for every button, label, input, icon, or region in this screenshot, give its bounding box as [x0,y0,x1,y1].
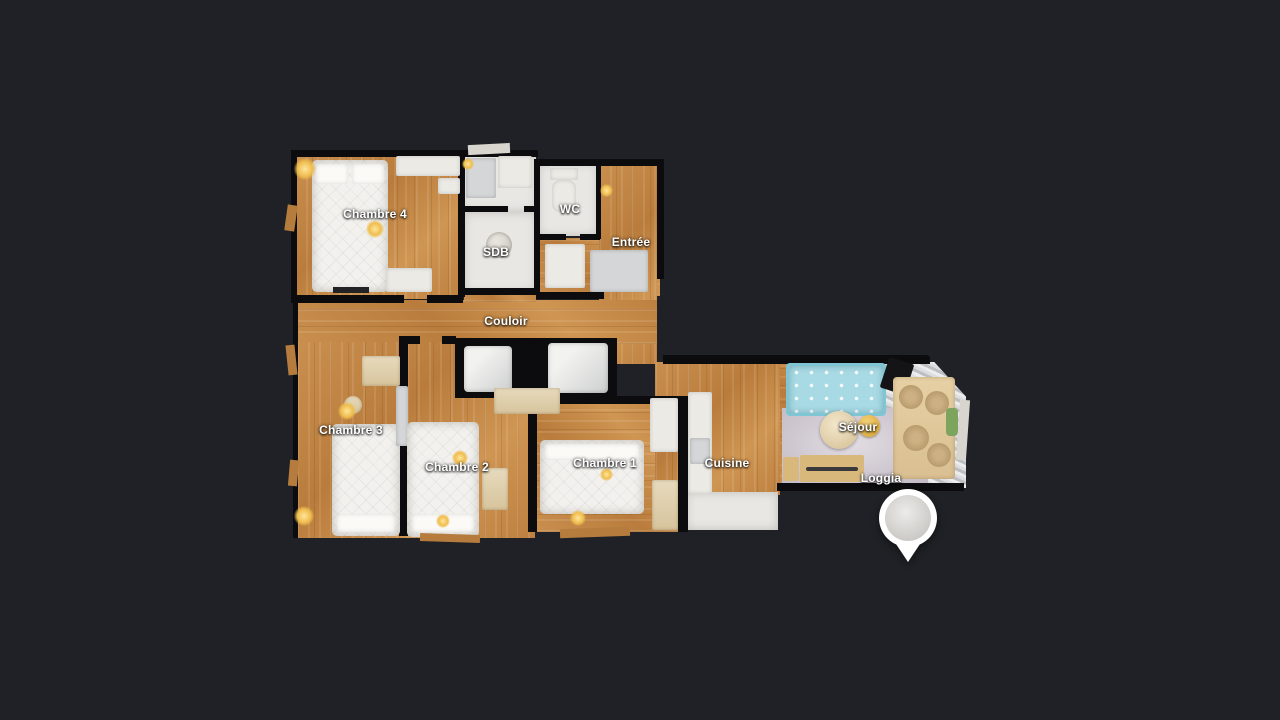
desk-chambre3 [362,356,400,386]
panorama-pin[interactable] [877,488,939,564]
wall [538,234,566,240]
sun-flare [294,506,314,526]
dresser-chambre4 [386,268,432,292]
wall [291,295,404,303]
sun-flare [338,402,356,420]
wardrobe-chambre1 [652,480,678,530]
wall [596,161,601,239]
shelf-chambre4 [438,178,460,194]
placemat [903,425,929,451]
room-label-loggia: Loggia [861,471,902,485]
room-label-chambre1: Chambre 1 [573,456,637,470]
wall [293,302,298,538]
wall [528,398,537,532]
vanity [494,388,560,414]
room-label-chambre2: Chambre 2 [425,460,489,474]
placemat [927,443,951,467]
wall [536,292,604,299]
washer [498,156,532,188]
shower-stall [464,346,512,392]
sofa [786,363,886,416]
shelf-chambre4 [396,156,460,176]
placemat [899,385,923,409]
closet-chambre1 [650,398,678,452]
sun-flare [570,510,586,526]
pillow [337,514,395,532]
desk-chambre2 [482,468,508,510]
wall [534,159,540,293]
wall [460,288,538,295]
room-label-chambre4: Chambre 4 [343,207,407,221]
room-label-entree: Entrée [612,235,651,249]
floorplan-view[interactable]: Chambre 4 SDB WC Entrée Couloir Chambre … [0,0,1280,720]
pillow [352,164,384,184]
sun-flare [366,220,384,238]
wall [442,336,456,344]
wall [678,398,688,532]
pillow [316,164,348,184]
loggia-rail [806,467,858,471]
wc-tank [550,168,578,180]
room-label-chambre3: Chambre 3 [319,423,383,437]
room-label-couloir: Couloir [484,314,527,328]
wall [462,206,508,212]
scan-shard [420,533,480,543]
bath-cabinet [545,244,585,288]
room-label-sdb: SDB [483,245,509,259]
floor-cuisine-bottom [686,492,778,530]
room-label-sejour: Séjour [839,420,878,434]
wall [524,206,536,212]
sun-flare [462,158,474,170]
scan-shard [560,527,630,538]
plant-dish [946,408,958,436]
loggia-chair [783,457,799,481]
room-label-cuisine: Cuisine [705,456,750,470]
shower-stall [548,343,608,393]
wall [408,336,420,344]
pin-icon [877,488,939,564]
sun-flare [294,158,316,180]
sun-flare [436,514,450,528]
wall [657,159,664,279]
bath-sink-lower [590,250,648,292]
room-label-wc: WC [560,202,580,216]
bench-chambre4 [333,287,369,293]
sun-flare [600,184,613,197]
floorplan-viewer: Chambre 4 SDB WC Entrée Couloir Chambre … [0,0,1280,720]
